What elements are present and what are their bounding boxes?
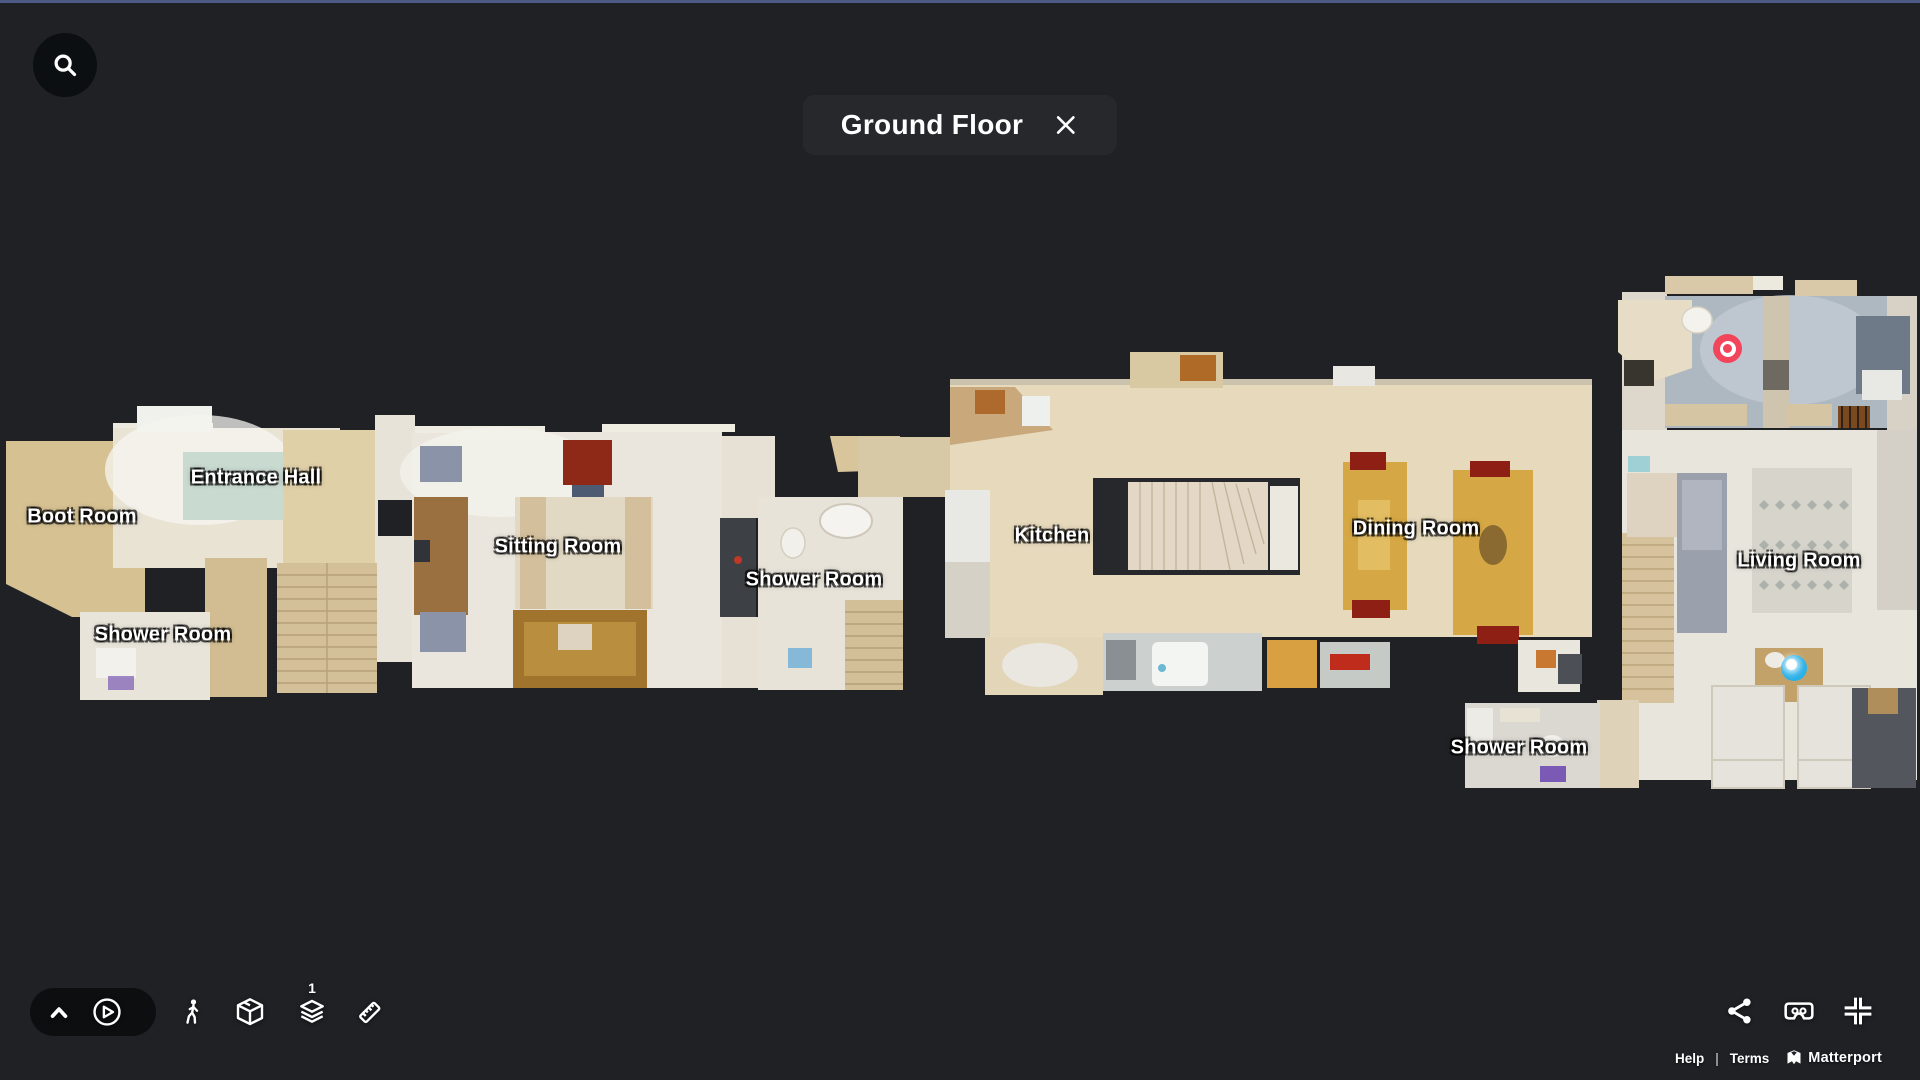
walkthrough-mode-button[interactable]	[172, 992, 212, 1032]
exit-fullscreen-icon	[1843, 996, 1873, 1026]
footer-links: Help | Terms Matterport	[1675, 1049, 1882, 1067]
matterport-logo	[1785, 1049, 1803, 1067]
vr-headset-icon	[1783, 995, 1815, 1027]
play-icon	[90, 995, 124, 1029]
room-label-living-room: Living Room	[1737, 550, 1860, 573]
room-label-dining-room: Dining Room	[1353, 518, 1480, 541]
room-label-shower-room-3: Shower Room	[1451, 737, 1588, 760]
room-label-kitchen: Kitchen	[1015, 525, 1090, 548]
chevron-up-icon	[45, 998, 73, 1026]
kitchen-dining-wing	[945, 352, 1592, 695]
tour-start-marker-ring	[1720, 341, 1736, 357]
room-label-entrance-hall: Entrance Hall	[191, 467, 321, 490]
collapse-panel-button[interactable]	[39, 992, 79, 1032]
tour-start-marker-dot	[1723, 344, 1732, 353]
room-label-shower-room-1: Shower Room	[95, 624, 232, 647]
measure-tool-button[interactable]	[350, 992, 390, 1032]
floorplan-rendering	[0, 0, 1920, 1080]
left-wing	[6, 406, 415, 700]
exit-fullscreen-button[interactable]	[1838, 991, 1878, 1031]
mid-shower-wing	[758, 436, 968, 690]
share-button[interactable]	[1720, 991, 1760, 1031]
footer-separator: |	[1715, 1051, 1719, 1066]
share-icon	[1725, 996, 1755, 1026]
help-link[interactable]: Help	[1675, 1051, 1704, 1066]
play-tour-button[interactable]	[87, 992, 127, 1032]
vr-mode-button[interactable]	[1779, 991, 1819, 1031]
playback-pill	[30, 988, 156, 1036]
room-label-boot-room: Boot Room	[27, 506, 137, 529]
dollhouse-icon	[234, 996, 266, 1028]
terms-link[interactable]: Terms	[1730, 1051, 1770, 1066]
room-label-shower-room-2: Shower Room	[746, 569, 883, 592]
room-label-sitting-room: Sitting Room	[495, 536, 622, 559]
floorplan-canvas[interactable]: Boot Room Entrance Hall Shower Room Sitt…	[0, 0, 1920, 1080]
dollhouse-mode-button[interactable]	[230, 992, 270, 1032]
current-position-marker[interactable]	[1781, 655, 1807, 681]
floor-selector-button[interactable]: 1	[288, 980, 336, 1040]
view-toolbar: 1	[30, 984, 450, 1040]
floor-badge: 1	[308, 981, 316, 995]
matterport-brand-name: Matterport	[1808, 1050, 1882, 1066]
walk-icon	[177, 997, 207, 1027]
matterport-brand[interactable]: Matterport	[1785, 1049, 1882, 1067]
current-position-glow	[1786, 659, 1797, 670]
tour-start-marker[interactable]	[1713, 334, 1742, 363]
matterport-viewer: Ground Floor	[0, 0, 1920, 1080]
ruler-icon	[354, 996, 386, 1028]
floors-icon	[296, 995, 328, 1027]
utility-toolbar	[1720, 991, 1878, 1031]
